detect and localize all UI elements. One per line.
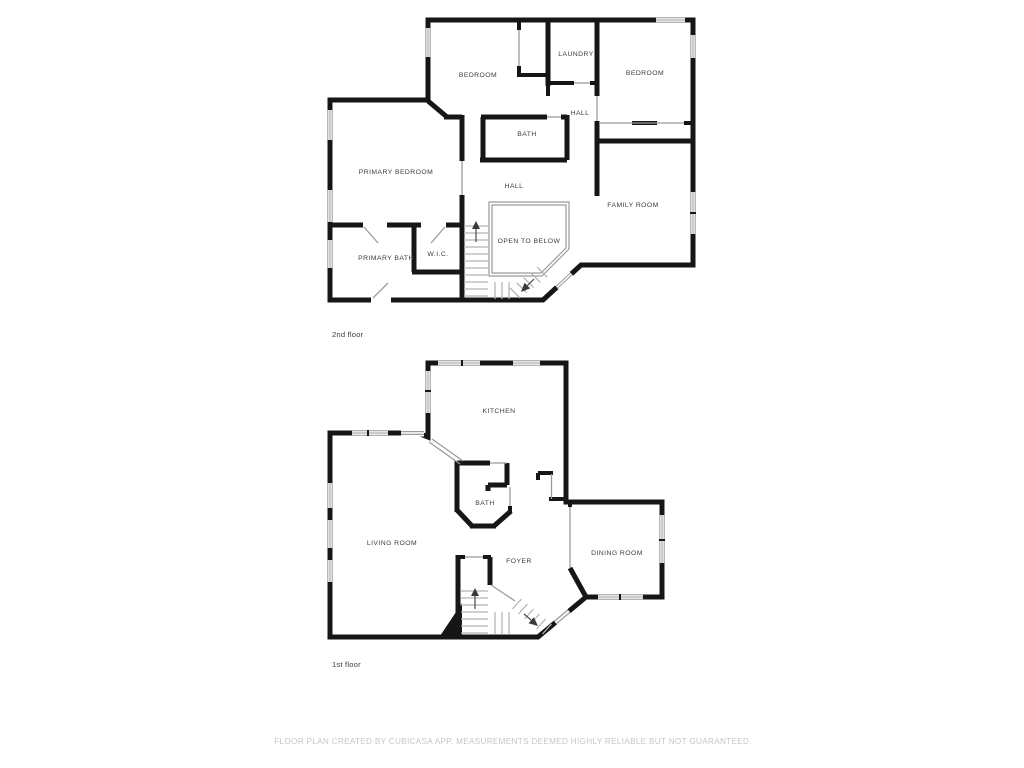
room-label-hall: HALL [505, 183, 524, 190]
window [327, 240, 334, 268]
room-label-wic: W.I.C. [427, 251, 448, 258]
window [659, 515, 666, 563]
floor1-windows [327, 360, 666, 601]
room-label-bath1: BATH [475, 500, 494, 507]
room-label-family-room: FAMILY ROOM [607, 202, 659, 209]
front-door [553, 608, 571, 625]
window [327, 110, 334, 140]
room-label-open-to-below: OPEN TO BELOW [498, 238, 561, 245]
deck-door-leaf [373, 283, 388, 298]
room-label-foyer: FOYER [506, 558, 532, 565]
room-label-bedroom-left: BEDROOM [459, 72, 497, 79]
room-label-living-room: LIVING ROOM [367, 540, 417, 547]
room-label-primary-bedroom: PRIMARY BEDROOM [359, 169, 433, 176]
floor2-caption: 2nd floor [332, 330, 364, 339]
window [690, 35, 697, 58]
room-label-kitchen: KITCHEN [483, 408, 516, 415]
floor2-stairs [464, 221, 547, 299]
window [327, 483, 334, 508]
floor-plan-page: BEDROOM LAUNDRY BEDROOM HALL BATH PRIMAR… [0, 0, 1024, 768]
wic-door-leaf [431, 227, 445, 243]
floor2-windows [327, 17, 697, 290]
window [327, 560, 334, 582]
room-label-bath2: BATH [517, 131, 536, 138]
floor1-plan: KITCHEN BATH LIVING ROOM FOYER DINING RO… [327, 360, 666, 670]
room-label-laundry: LAUNDRY [558, 51, 594, 58]
room-label-hall-upper: HALL [571, 110, 590, 117]
footer-disclaimer: FLOOR PLAN CREATED BY CUBICASA APP. MEAS… [274, 737, 752, 746]
kitchen-archway [429, 439, 463, 464]
window [690, 192, 697, 234]
stair-diagonal-boundary [491, 585, 515, 601]
window [327, 520, 334, 548]
window [513, 360, 540, 367]
window [327, 190, 334, 222]
window-diagonal [554, 271, 574, 290]
floor-plan-canvas: BEDROOM LAUNDRY BEDROOM HALL BATH PRIMAR… [0, 0, 1024, 768]
window [656, 17, 685, 24]
primary-bath-door-leaf [364, 227, 378, 243]
room-label-primary-bath: PRIMARY BATH [358, 255, 414, 262]
room-label-bedroom-right: BEDROOM [626, 70, 664, 77]
window [425, 371, 432, 413]
floor2-plan: BEDROOM LAUNDRY BEDROOM HALL BATH PRIMAR… [327, 17, 697, 340]
room-label-dining-room: DINING ROOM [591, 550, 643, 557]
window [352, 430, 388, 437]
floor1-caption: 1st floor [332, 660, 361, 669]
stairs-up-arrow-icon [472, 221, 480, 242]
window [438, 360, 480, 367]
window [598, 594, 643, 601]
window [425, 28, 432, 57]
